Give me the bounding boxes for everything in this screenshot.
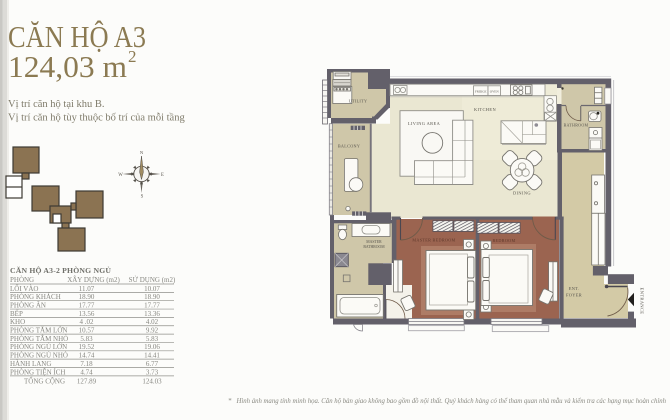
svg-text:18.90: 18.90 — [79, 293, 95, 301]
svg-text:LIVING AREA: LIVING AREA — [408, 121, 441, 126]
svg-text:10.07: 10.07 — [144, 285, 160, 293]
svg-text:11.07: 11.07 — [79, 285, 95, 293]
svg-text:6.77: 6.77 — [146, 360, 159, 368]
svg-text:PHÒNG NGỦ NHỎ: PHÒNG NGỦ NHỎ — [10, 352, 68, 360]
svg-text:PHÒNG TIỆN ÍCH: PHÒNG TIỆN ÍCH — [10, 368, 65, 376]
svg-text:124.03: 124.03 — [142, 377, 162, 385]
svg-text:PHÒNG TẮM NHỎ: PHÒNG TẮM NHỎ — [10, 335, 68, 343]
svg-text:124,03 m: 124,03 m — [8, 49, 127, 84]
svg-text:SỬ DỤNG (m2): SỬ DỤNG (m2) — [129, 276, 176, 284]
svg-text:HÀNH LANG: HÀNH LANG — [10, 360, 51, 368]
svg-text:19.06: 19.06 — [144, 343, 160, 351]
svg-text:9.92: 9.92 — [146, 327, 159, 335]
svg-text:XÂY DỰNG (m2): XÂY DỰNG (m2) — [67, 276, 120, 284]
svg-text:PHÒNG NGỦ LỚN: PHÒNG NGỦ LỚN — [10, 343, 67, 351]
svg-text:4.74: 4.74 — [80, 368, 93, 376]
svg-text:BATHROOM: BATHROOM — [564, 122, 589, 127]
svg-text:MASTER: MASTER — [366, 240, 382, 244]
svg-text:ENT.: ENT. — [569, 286, 580, 291]
svg-text:PHÒNG: PHÒNG — [10, 276, 34, 284]
svg-text:BẾP: BẾP — [10, 310, 23, 318]
svg-text:18.90: 18.90 — [144, 293, 160, 301]
svg-text:CĂN HỘ A3-2 PHÒNG NGỦ: CĂN HỘ A3-2 PHÒNG NGỦ — [10, 265, 111, 275]
svg-text:10.57: 10.57 — [79, 327, 95, 335]
svg-text:PHÒNG ĂN: PHÒNG ĂN — [10, 302, 46, 310]
svg-text:OVEN: OVEN — [490, 89, 500, 93]
svg-text:Vị trí căn hộ tại khu B.: Vị trí căn hộ tại khu B. — [8, 99, 105, 110]
svg-text:4.02: 4.02 — [146, 318, 159, 326]
svg-text:PHÒNG KHÁCH: PHÒNG KHÁCH — [10, 293, 61, 301]
svg-text:TỔNG CỘNG: TỔNG CỘNG — [24, 377, 65, 385]
svg-text:W: W — [118, 173, 123, 178]
svg-text:* Hình ảnh mang tính minh họ: * Hình ảnh mang tính minh họa. Căn hộ bà… — [228, 396, 666, 405]
svg-text:S: S — [141, 195, 144, 200]
svg-text:MASTER BEDROOM: MASTER BEDROOM — [412, 238, 455, 243]
svg-text:DINING: DINING — [513, 191, 531, 196]
svg-text:KITCHEN: KITCHEN — [474, 107, 496, 112]
svg-text:FRIDGE: FRIDGE — [475, 89, 487, 93]
svg-text:3.73: 3.73 — [146, 368, 159, 376]
svg-text:19.52: 19.52 — [79, 343, 95, 351]
svg-text:BALCONY: BALCONY — [338, 144, 360, 149]
svg-text:7.18: 7.18 — [80, 360, 93, 368]
svg-text:17.77: 17.77 — [79, 302, 95, 310]
svg-text:5.83: 5.83 — [80, 335, 93, 343]
svg-text:127.89: 127.89 — [77, 377, 97, 385]
svg-text:BATHROOM: BATHROOM — [363, 245, 385, 249]
svg-text:2: 2 — [128, 47, 137, 66]
svg-text:4 .02: 4 .02 — [80, 318, 95, 326]
svg-text:PHÒNG TẮM LỚN: PHÒNG TẮM LỚN — [10, 327, 67, 335]
svg-text:5.83: 5.83 — [146, 335, 159, 343]
svg-text:Vị trí căn hộ tùy thuộc bố trí: Vị trí căn hộ tùy thuộc bố trí của mỗi t… — [8, 113, 185, 124]
svg-text:14.74: 14.74 — [79, 352, 95, 360]
svg-text:FOYER: FOYER — [566, 293, 582, 298]
svg-text:UTILITY: UTILITY — [349, 99, 368, 104]
svg-text:BEDROOM: BEDROOM — [492, 238, 515, 243]
svg-text:13.56: 13.56 — [79, 310, 95, 318]
svg-text:KHO: KHO — [10, 318, 25, 326]
svg-text:14.41: 14.41 — [144, 352, 160, 360]
svg-text:LỐI VÀO: LỐI VÀO — [10, 285, 38, 293]
svg-text:17.77: 17.77 — [144, 302, 160, 310]
svg-text:E: E — [161, 173, 164, 178]
svg-text:13.36: 13.36 — [144, 310, 160, 318]
svg-text:ENTRANCE: ENTRANCE — [640, 288, 645, 315]
